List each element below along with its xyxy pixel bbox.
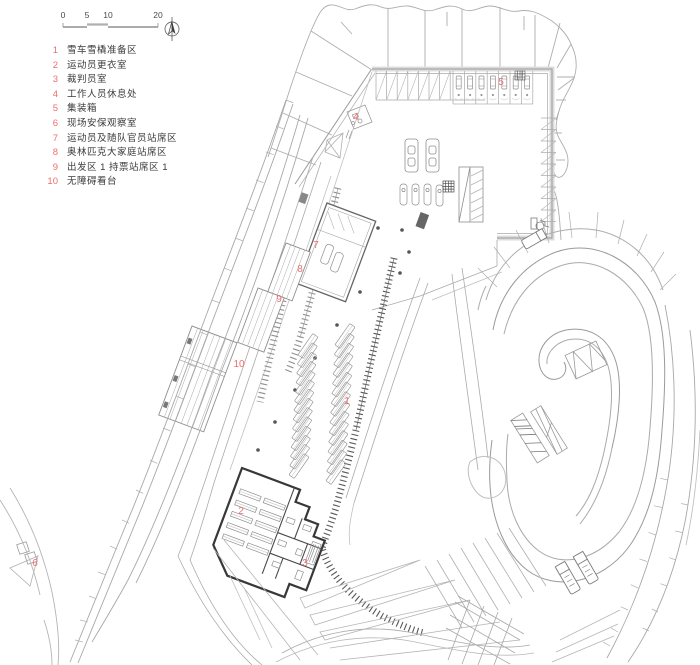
truck-glyphs <box>521 229 599 595</box>
stands-accessible <box>159 326 237 432</box>
legend-item-number: 7 <box>40 132 67 147</box>
scale-label: 10 <box>103 10 113 20</box>
plan-marker-2: 2 <box>238 506 244 517</box>
legend-item-1: 1雪车雪橇准备区 <box>40 44 177 59</box>
plan-marker-3: 3 <box>302 558 308 569</box>
legend-item-number: 5 <box>40 102 67 117</box>
plan-marker-10: 10 <box>233 359 245 370</box>
legend-item-number: 6 <box>40 117 67 132</box>
legend-item-number: 9 <box>40 161 67 176</box>
legend-item-label: 裁判员室 <box>67 73 107 88</box>
plan-marker-4: 4 <box>353 112 359 123</box>
plan-marker-6: 6 <box>32 558 38 569</box>
legend-item-6: 6现场安保观察室 <box>40 117 177 132</box>
north-arrow-icon <box>165 17 179 41</box>
scale-label: 5 <box>85 10 90 20</box>
legend-item-label: 雪车雪橇准备区 <box>67 44 137 59</box>
legend-item-10: 10无障碍看台 <box>40 175 177 190</box>
legend-item-label: 集装箱 <box>67 102 97 117</box>
loop-road <box>468 229 665 582</box>
plan-marker-5: 5 <box>498 77 504 88</box>
legend-item-5: 5集装箱 <box>40 102 177 117</box>
legend-item-number: 10 <box>40 175 67 190</box>
site-plan-page: 051020 12345678910 1雪车雪橇准备区2运动员更衣室3裁判员室4… <box>0 0 700 665</box>
legend-item-3: 3裁判员室 <box>40 73 177 88</box>
legend-item-number: 8 <box>40 146 67 161</box>
legend-item-7: 7运动员及随队官员站席区 <box>40 132 177 147</box>
legend-item-label: 运动员及随队官员站席区 <box>67 132 177 147</box>
loop-ramps <box>511 341 607 463</box>
legend-item-label: 出发区 1 持票站席区 1 <box>67 161 168 176</box>
legend-item-number: 1 <box>40 44 67 59</box>
legend-item-9: 9出发区 1 持票站席区 1 <box>40 161 177 176</box>
sled-glyphs-small <box>400 184 443 206</box>
scale-bar: 051020 <box>61 10 163 27</box>
legend-item-number: 4 <box>40 88 67 103</box>
legend-item-4: 4工作人员休息处 <box>40 88 177 103</box>
legend-item-label: 工作人员休息处 <box>67 88 137 103</box>
legend-item-label: 运动员更衣室 <box>67 59 127 74</box>
athlete-building <box>205 468 339 603</box>
legend-item-8: 8奥林匹克大家庭站席区 <box>40 146 177 161</box>
legend: 1雪车雪橇准备区2运动员更衣室3裁判员室4工作人员休息处5集装箱6现场安保观察室… <box>40 44 177 190</box>
legend-item-number: 2 <box>40 59 67 74</box>
plan-marker-9: 9 <box>276 294 282 305</box>
right-slope-roads <box>607 305 700 662</box>
scale-label: 20 <box>153 10 163 20</box>
legend-item-2: 2运动员更衣室 <box>40 59 177 74</box>
stairs-grid-icon <box>443 181 454 192</box>
legend-item-label: 无障碍看台 <box>67 175 117 190</box>
plan-marker-7: 7 <box>313 240 319 251</box>
legend-item-number: 3 <box>40 73 67 88</box>
legend-item-label: 奥林匹克大家庭站席区 <box>67 146 167 161</box>
plan-marker-8: 8 <box>297 264 303 275</box>
plan-marker-1: 1 <box>344 396 350 407</box>
legend-item-label: 现场安保观察室 <box>67 117 137 132</box>
scale-label: 0 <box>61 10 66 20</box>
